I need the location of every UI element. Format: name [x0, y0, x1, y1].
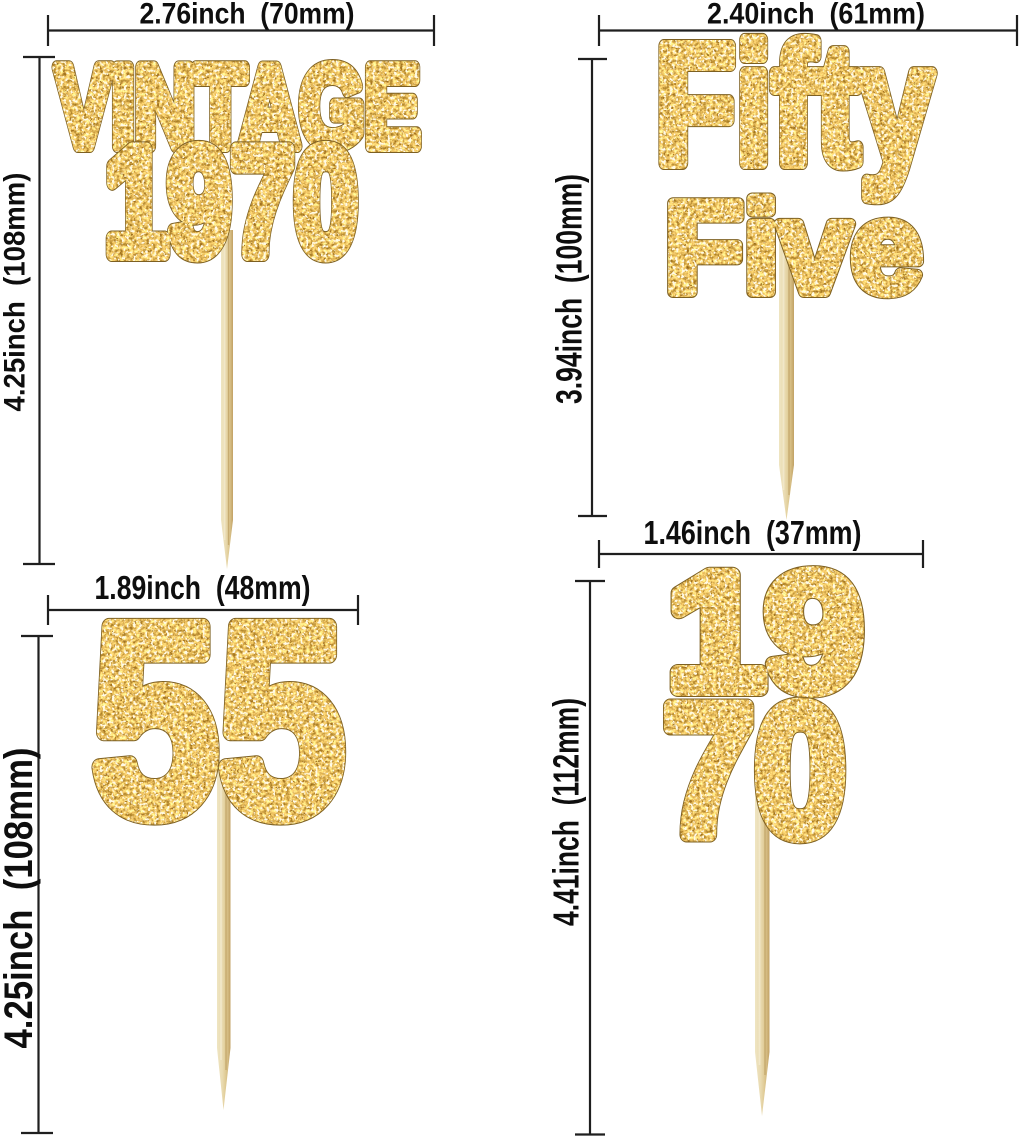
svg-text:Five: Five: [665, 176, 923, 320]
svg-text:Fifty: Fifty: [655, 10, 933, 200]
svg-text:2.40inch (61mm): 2.40inch (61mm): [707, 0, 925, 31]
svg-text:1.46inch (37mm): 1.46inch (37mm): [644, 514, 862, 551]
svg-text:70: 70: [663, 668, 846, 875]
svg-text:1970: 1970: [105, 117, 358, 287]
svg-text:4.25inch (108mm): 4.25inch (108mm): [0, 173, 32, 412]
svg-text:4.41inch (112mm): 4.41inch (112mm): [546, 698, 587, 926]
svg-text:1.89inch (48mm): 1.89inch (48mm): [95, 570, 311, 607]
svg-text:4.25inch (108mm): 4.25inch (108mm): [0, 748, 41, 1049]
svg-text:3.94inch (100mm): 3.94inch (100mm): [549, 174, 590, 404]
svg-text:2.76inch (70mm): 2.76inch (70mm): [140, 0, 355, 31]
svg-text:55: 55: [92, 568, 345, 872]
